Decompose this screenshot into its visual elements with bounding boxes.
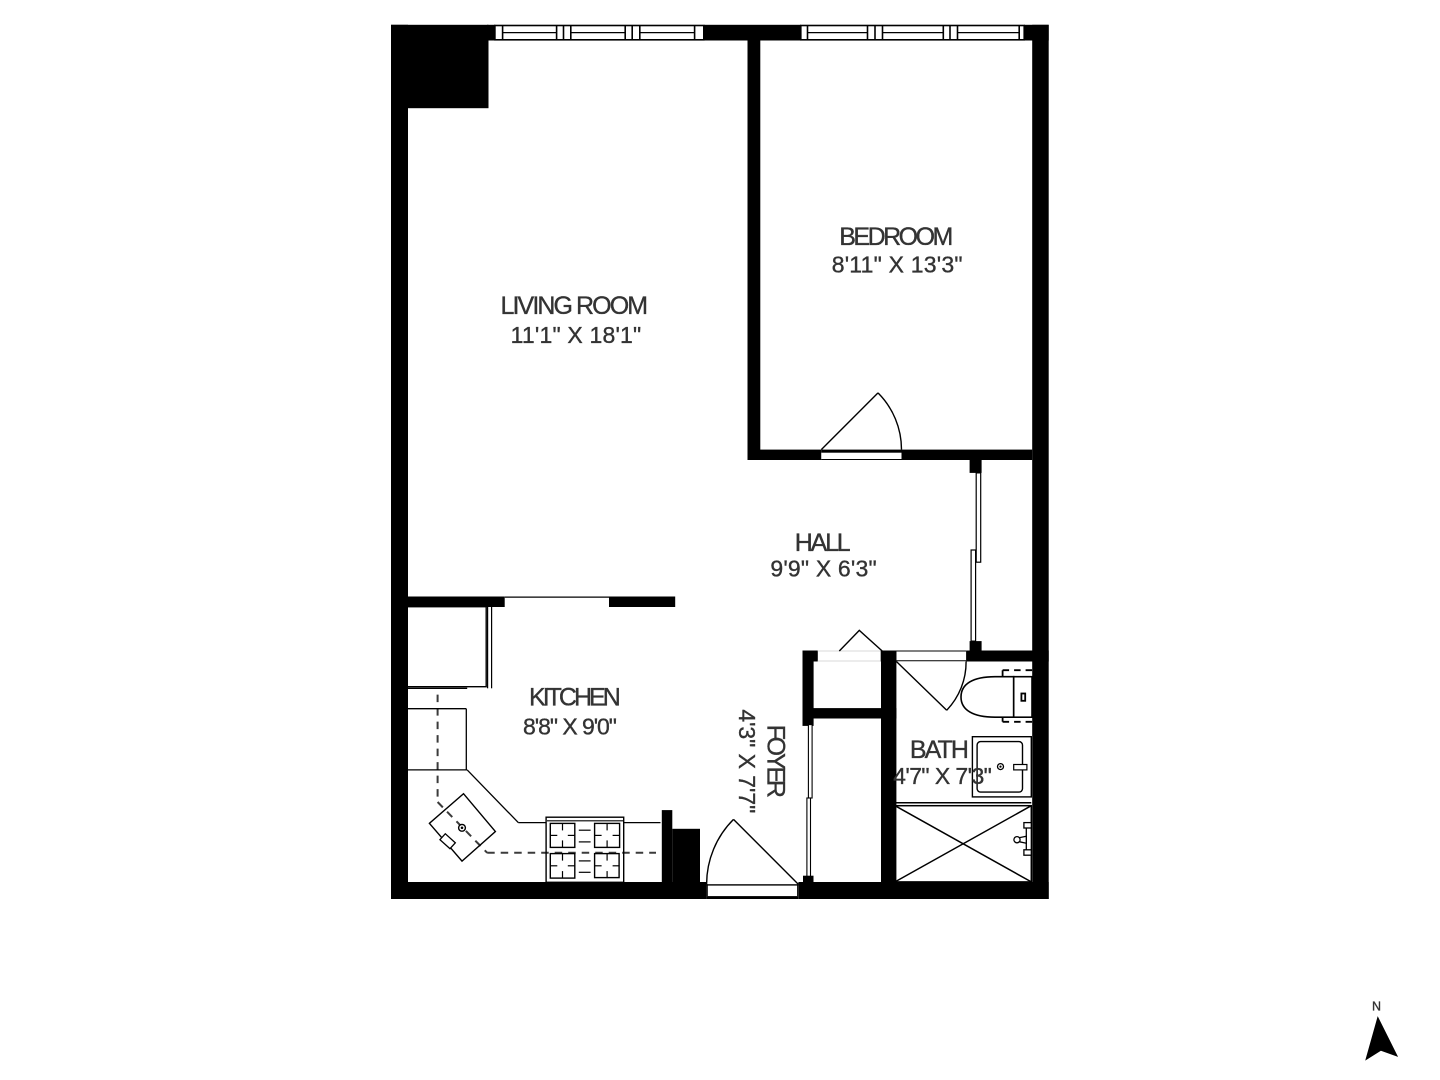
svg-text:FOYER: FOYER xyxy=(762,725,790,798)
svg-text:8'11" X 13'3": 8'11" X 13'3" xyxy=(832,252,963,278)
svg-text:4'3" X 7'7": 4'3" X 7'7" xyxy=(734,709,760,813)
svg-text:LIVING ROOM: LIVING ROOM xyxy=(501,292,649,320)
svg-text:HALL: HALL xyxy=(795,529,851,557)
svg-text:9'9" X 6'3": 9'9" X 6'3" xyxy=(770,556,876,582)
svg-text:KITCHEN: KITCHEN xyxy=(529,683,621,711)
svg-text:4'7" X 7'3": 4'7" X 7'3" xyxy=(893,763,992,789)
svg-text:N: N xyxy=(1372,1000,1381,1014)
svg-text:8'8" X 9'0": 8'8" X 9'0" xyxy=(523,713,617,739)
svg-text:BATH: BATH xyxy=(910,736,969,764)
svg-text:11'1" X 18'1": 11'1" X 18'1" xyxy=(511,322,642,348)
svg-text:BEDROOM: BEDROOM xyxy=(839,223,953,251)
